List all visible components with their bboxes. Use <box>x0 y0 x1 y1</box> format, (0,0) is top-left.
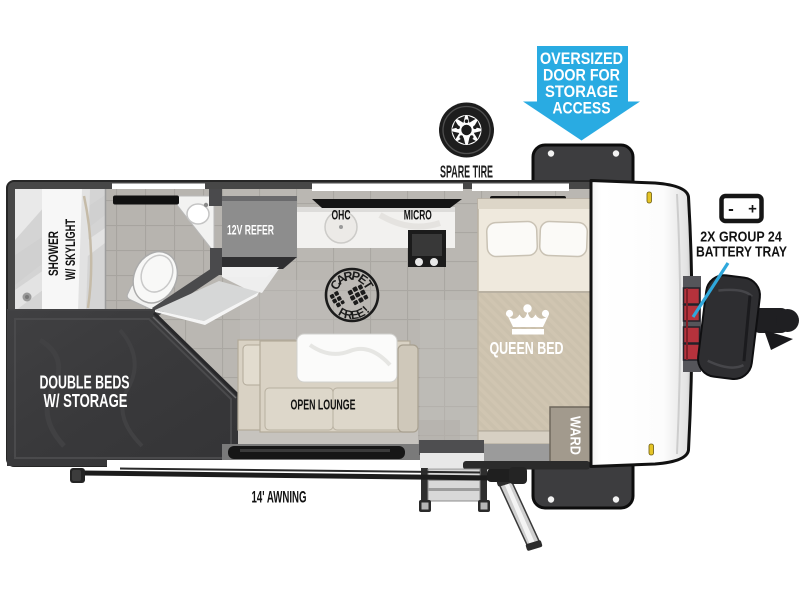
svg-text:14' AWNING: 14' AWNING <box>252 488 307 507</box>
svg-text:SHOWER: SHOWER <box>46 231 61 276</box>
svg-text:QUEEN BED: QUEEN BED <box>490 338 564 358</box>
svg-text:MICRO: MICRO <box>404 208 432 223</box>
svg-text:DOUBLE BEDS: DOUBLE BEDS <box>40 373 130 393</box>
svg-text:OPEN LOUNGE: OPEN LOUNGE <box>291 397 356 414</box>
svg-text:W/ SKYLIGHT: W/ SKYLIGHT <box>63 218 78 280</box>
svg-text:OVERSIZED: OVERSIZED <box>540 50 623 68</box>
svg-text:WARD: WARD <box>567 416 583 455</box>
svg-text:BATTERY TRAY: BATTERY TRAY <box>696 244 787 261</box>
svg-text:SPARE TIRE: SPARE TIRE <box>440 162 493 182</box>
svg-text:OHC: OHC <box>332 208 351 223</box>
svg-text:DOOR FOR: DOOR FOR <box>543 67 620 85</box>
svg-text:W/ STORAGE: W/ STORAGE <box>44 391 128 411</box>
svg-text:STORAGE: STORAGE <box>545 83 618 101</box>
svg-text:+: + <box>748 201 757 218</box>
svg-text:-: - <box>728 200 734 219</box>
svg-text:ACCESS: ACCESS <box>553 100 611 118</box>
svg-text:12V REFER: 12V REFER <box>227 223 274 238</box>
